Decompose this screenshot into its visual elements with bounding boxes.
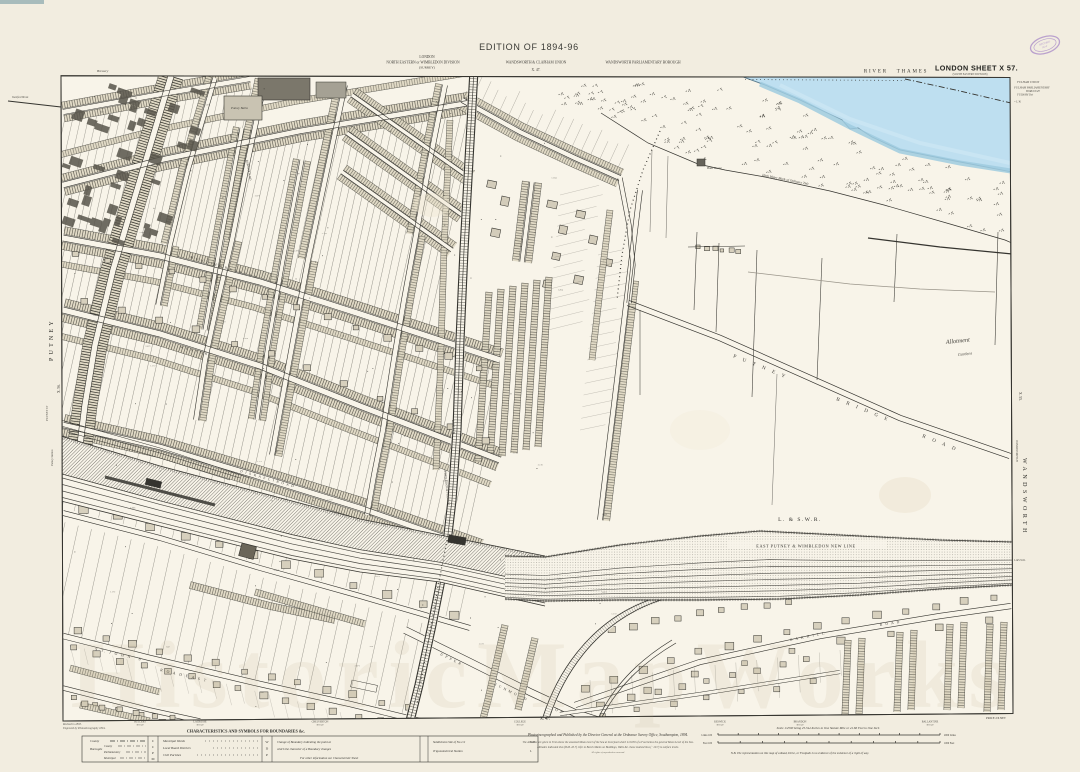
svg-text:Feet 100: Feet 100 [703,742,713,745]
svg-text:Brewery: Brewery [97,69,109,73]
svg-text:2.871: 2.871 [294,250,300,252]
svg-text:LONDON SHEET X 57.: LONDON SHEET X 57. [935,64,1018,73]
svg-text:1.172: 1.172 [221,321,227,323]
svg-text:Civil Parishes: Civil Parishes [163,753,182,757]
svg-text:2.871: 2.871 [375,576,381,578]
svg-text:2.871: 2.871 [602,592,608,594]
svg-text:which the character of a Bound: which the character of a Boundary change… [277,747,332,751]
svg-text:2.006: 2.006 [139,232,145,234]
svg-text:NORTH EASTERN or WIMBLEDON DIV: NORTH EASTERN or WIMBLEDON DIVISION [386,61,460,65]
svg-text:Trigonometrical Station: Trigonometrical Station [433,749,463,753]
svg-text:WANDSWORTH: WANDSWORTH [1021,458,1027,536]
svg-text:PUTNEY: PUTNEY [49,318,55,361]
svg-text:1.172: 1.172 [327,499,333,501]
svg-text:1.204: 1.204 [558,289,564,291]
svg-text:~ L.W.: ~ L.W. [1014,101,1022,104]
svg-text:2.871: 2.871 [255,195,261,197]
svg-text:WANDSWORTH Pl: WANDSWORTH Pl [1015,440,1018,462]
svg-text:HistoricMapWorks: HistoricMapWorks [71,622,1006,728]
svg-text:Stamford Brook: Stamford Brook [12,96,29,99]
svg-text:All rights of reproduction res: All rights of reproduction reserved. [590,751,625,754]
svg-text:3.116: 3.116 [513,453,519,455]
svg-text:FULHAM UNION: FULHAM UNION [1016,80,1040,84]
svg-text:CHARACTERISTICS AND SYMBOLS FO: CHARACTERISTICS AND SYMBOLS FOR BOUNDARI… [187,729,305,734]
svg-text:FULHAM Det: FULHAM Det [1016,94,1033,97]
svg-text:Subdivision Site of No 1/2: Subdivision Site of No 1/2 [433,740,466,744]
svg-text:3.116: 3.116 [538,465,544,467]
svg-text:County: County [90,739,100,743]
svg-text:Altitudes indicated thus (B.M.: Altitudes indicated thus (B.M. 20.7) ref… [536,746,679,749]
svg-text:L.&S.W.R.: L.&S.W.R. [1014,559,1026,562]
svg-text:1.172: 1.172 [110,592,116,594]
svg-text:2.871: 2.871 [145,346,151,348]
svg-text:2.006: 2.006 [274,570,280,572]
svg-text:PUTNEY ST: PUTNEY ST [45,406,49,422]
svg-text:WANDSWORTH & CLAPHAM UNION: WANDSWORTH & CLAPHAM UNION [506,61,567,65]
svg-text:L. & S.W.R.: L. & S.W.R. [778,517,822,523]
svg-text:3.116: 3.116 [322,233,328,235]
svg-text:(SOUTH EASTERN DIVISION): (SOUTH EASTERN DIVISION) [953,73,988,76]
svg-text:1.204: 1.204 [551,177,557,179]
svg-text:X. 56.: X. 56. [57,384,61,393]
svg-text:For other information see Char: For other information see Characteristic… [299,756,358,760]
svg-text:X. 55.: X. 55. [1018,392,1022,401]
svg-text:Parliamentary: Parliamentary [103,751,121,754]
svg-text:2.006: 2.006 [130,507,136,509]
svg-text:Change of Boundary indicating: Change of Boundary indicating the point … [277,740,331,744]
svg-text:1000 Feet: 1000 Feet [944,742,955,745]
svg-text:X. 47.: X. 47. [532,68,541,72]
svg-text:The Altitudes are given in Fee: The Altitudes are given in Feet above th… [522,741,693,744]
svg-text:2.871: 2.871 [442,105,448,107]
svg-text:1.172: 1.172 [611,614,617,616]
svg-text:Municipal Wards: Municipal Wards [162,739,186,743]
svg-text:RIVER THAMES: RIVER THAMES [864,69,928,74]
svg-text:M: M [151,757,154,761]
svg-text:Putney Baths: Putney Baths [230,106,249,110]
svg-text:2.006: 2.006 [205,104,211,106]
svg-text:1.172: 1.172 [150,366,156,368]
svg-text:LONDON: LONDON [419,55,435,59]
svg-text:Boat House: Boat House [707,166,723,170]
svg-text:P: P [152,751,154,755]
svg-text:Putney Station: Putney Station [51,449,54,467]
svg-text:2.006: 2.006 [602,514,608,516]
svg-text:Local Board Districts: Local Board Districts [162,746,191,750]
svg-text:FULHAM PARLIAMENTARY: FULHAM PARLIAMENTARY [1013,86,1050,90]
svg-text:2.871: 2.871 [109,257,115,259]
svg-text:Links 100: Links 100 [702,734,713,737]
svg-text:L.&S.W.R.: L.&S.W.R. [451,420,456,435]
svg-text:(SURREY): (SURREY) [419,66,435,70]
svg-text:2.006: 2.006 [443,480,449,482]
svg-text:County: County [104,745,113,748]
svg-text:1.172: 1.172 [257,461,263,463]
svg-text:P: P [266,753,268,757]
svg-text:EAST PUTNEY & WIMBLEDON NEW LI: EAST PUTNEY & WIMBLEDON NEW LINE [756,544,855,549]
svg-text:Municipal: Municipal [103,757,116,760]
svg-text:1.204: 1.204 [308,542,314,544]
svg-text:EDITION OF 1894-96: EDITION OF 1894-96 [479,42,579,52]
svg-text:L: L [530,750,532,753]
svg-text:Boroughs: Boroughs [90,747,103,751]
svg-text:2000 Links: 2000 Links [944,734,956,737]
svg-text:WANDSWORTH PARLIAMENTARY BOROU: WANDSWORTH PARLIAMENTARY BOROUGH [605,61,681,65]
svg-text:1.204: 1.204 [243,338,249,340]
